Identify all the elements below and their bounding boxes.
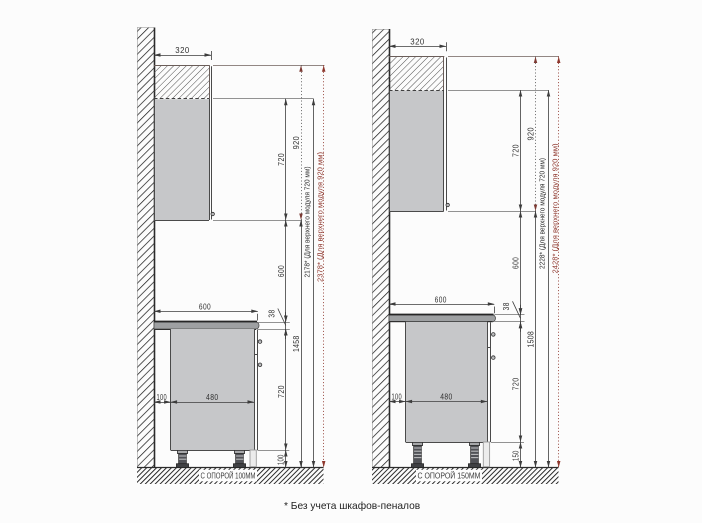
- svg-text:720: 720: [512, 144, 521, 157]
- svg-text:С ОПОРОЙ 100ММ: С ОПОРОЙ 100ММ: [201, 471, 256, 480]
- svg-text:100: 100: [157, 393, 168, 402]
- svg-text:720: 720: [277, 385, 286, 398]
- svg-text:* Без учета шкафов-пеналов: * Без учета шкафов-пеналов: [284, 500, 420, 512]
- svg-text:100: 100: [392, 393, 403, 402]
- svg-text:1508: 1508: [526, 331, 535, 348]
- svg-text:100: 100: [277, 454, 286, 465]
- svg-text:150: 150: [511, 450, 520, 461]
- svg-text:920: 920: [526, 127, 535, 141]
- svg-text:2178* (Для верхнего модуля 720: 2178* (Для верхнего модуля 720 мм): [302, 167, 311, 278]
- svg-text:480: 480: [440, 393, 453, 402]
- svg-text:2378* (Для верхнего модуля 920: 2378* (Для верхнего модуля 920 мм): [316, 152, 325, 282]
- svg-text:320: 320: [410, 38, 425, 47]
- svg-text:320: 320: [175, 46, 190, 55]
- svg-text:С ОПОРОЙ 150ММ: С ОПОРОЙ 150ММ: [418, 471, 481, 480]
- svg-text:600: 600: [277, 265, 286, 277]
- svg-text:720: 720: [512, 377, 521, 390]
- svg-text:920: 920: [292, 136, 301, 150]
- svg-text:480: 480: [206, 393, 219, 402]
- svg-text:720: 720: [277, 153, 286, 166]
- svg-text:600: 600: [199, 303, 211, 312]
- svg-text:38: 38: [502, 302, 511, 310]
- svg-text:38: 38: [268, 309, 277, 317]
- svg-text:1458: 1458: [292, 335, 301, 352]
- svg-text:2428* (Для верхнего модуля 920: 2428* (Для верхнего модуля 920 мм): [551, 144, 560, 274]
- svg-text:600: 600: [435, 295, 447, 304]
- svg-text:600: 600: [512, 257, 521, 269]
- svg-text:2228* (Для верхнего модуля 720: 2228* (Для верхнего модуля 720 мм): [537, 158, 546, 269]
